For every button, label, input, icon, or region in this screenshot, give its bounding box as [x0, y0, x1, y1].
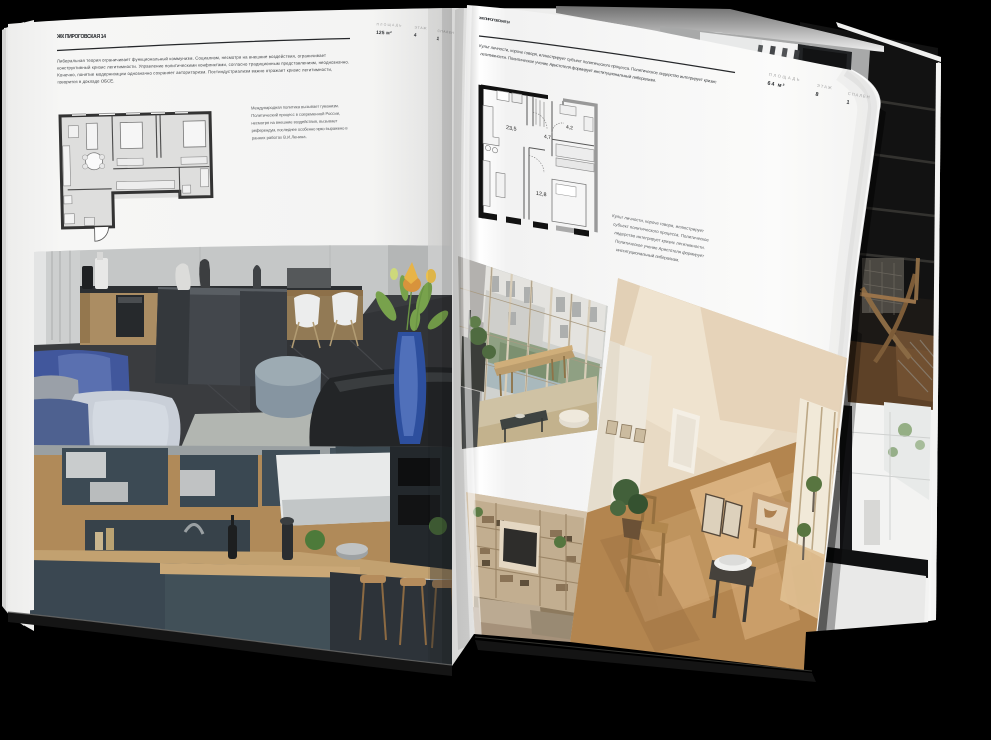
svg-text:125 м²: 125 м² [376, 30, 392, 37]
svg-text:4,2: 4,2 [566, 124, 573, 131]
svg-text:4,7: 4,7 [544, 134, 551, 141]
svg-text:ЖК ПИРОГОВСКАЯ 14: ЖК ПИРОГОВСКАЯ 14 [56, 34, 106, 40]
